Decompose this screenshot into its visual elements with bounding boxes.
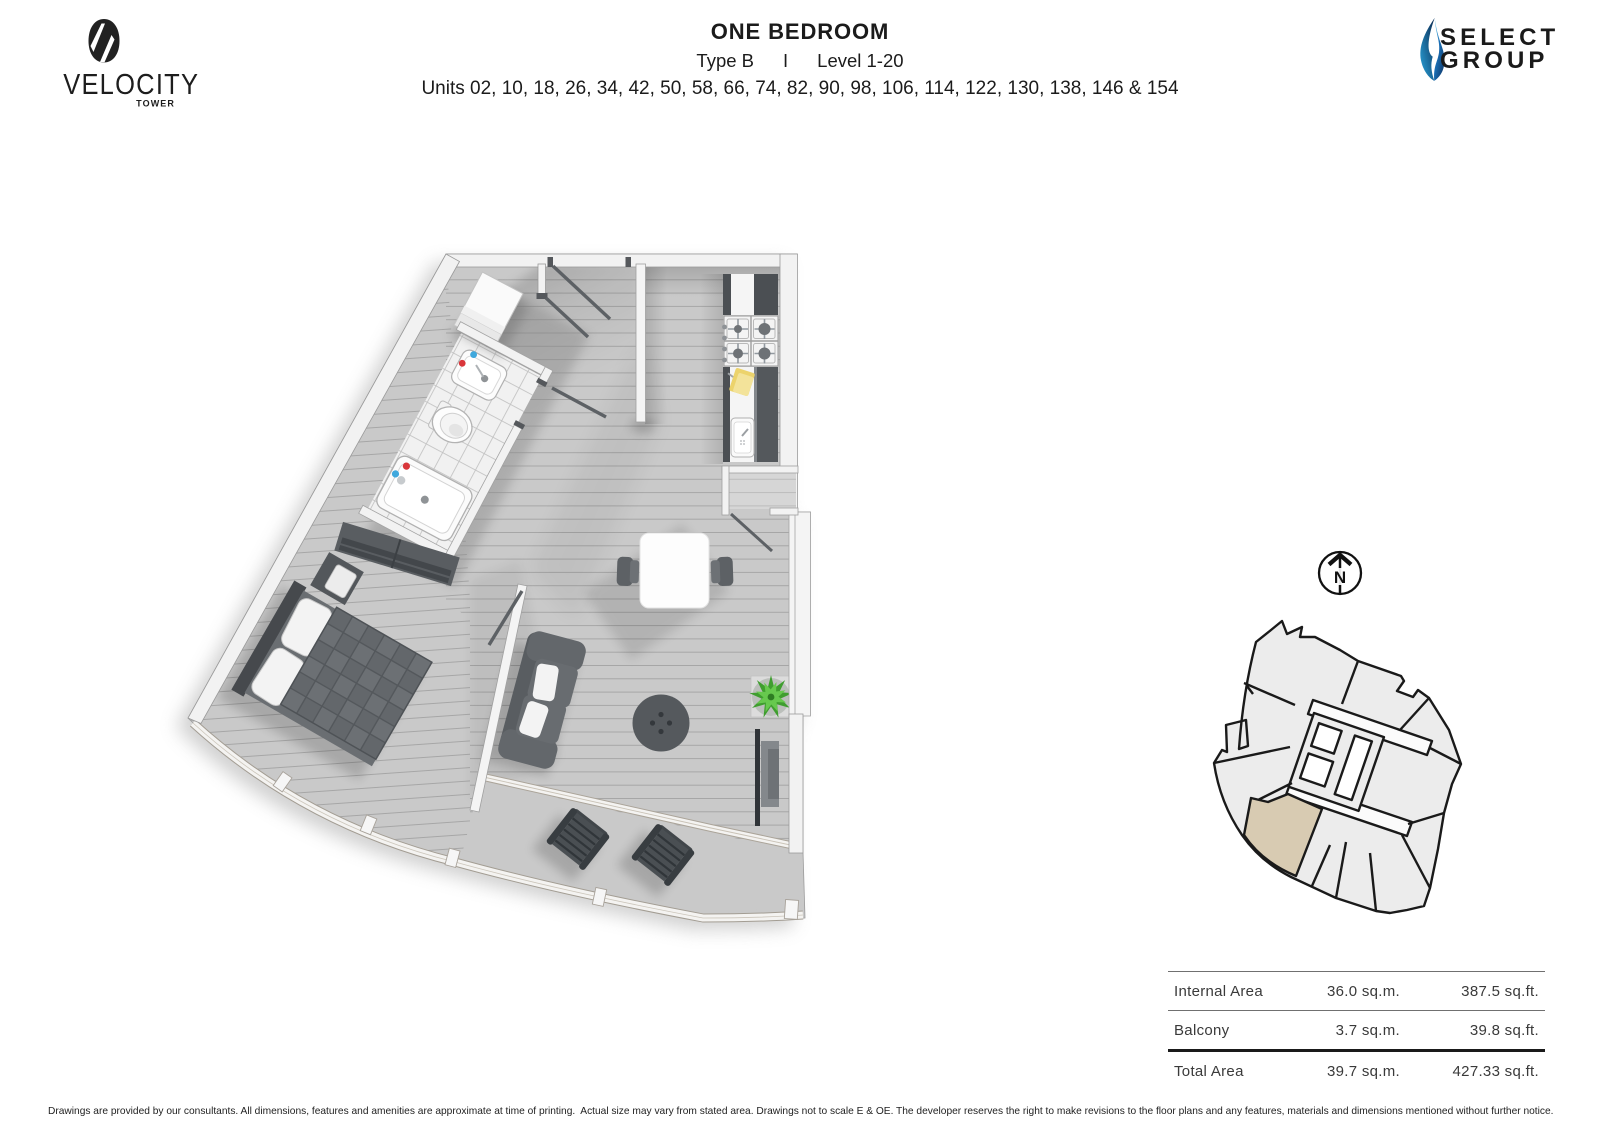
svg-text:GROUP: GROUP (1440, 47, 1549, 74)
svg-text:N: N (1334, 568, 1346, 587)
svg-text:TOWER: TOWER (136, 99, 175, 109)
